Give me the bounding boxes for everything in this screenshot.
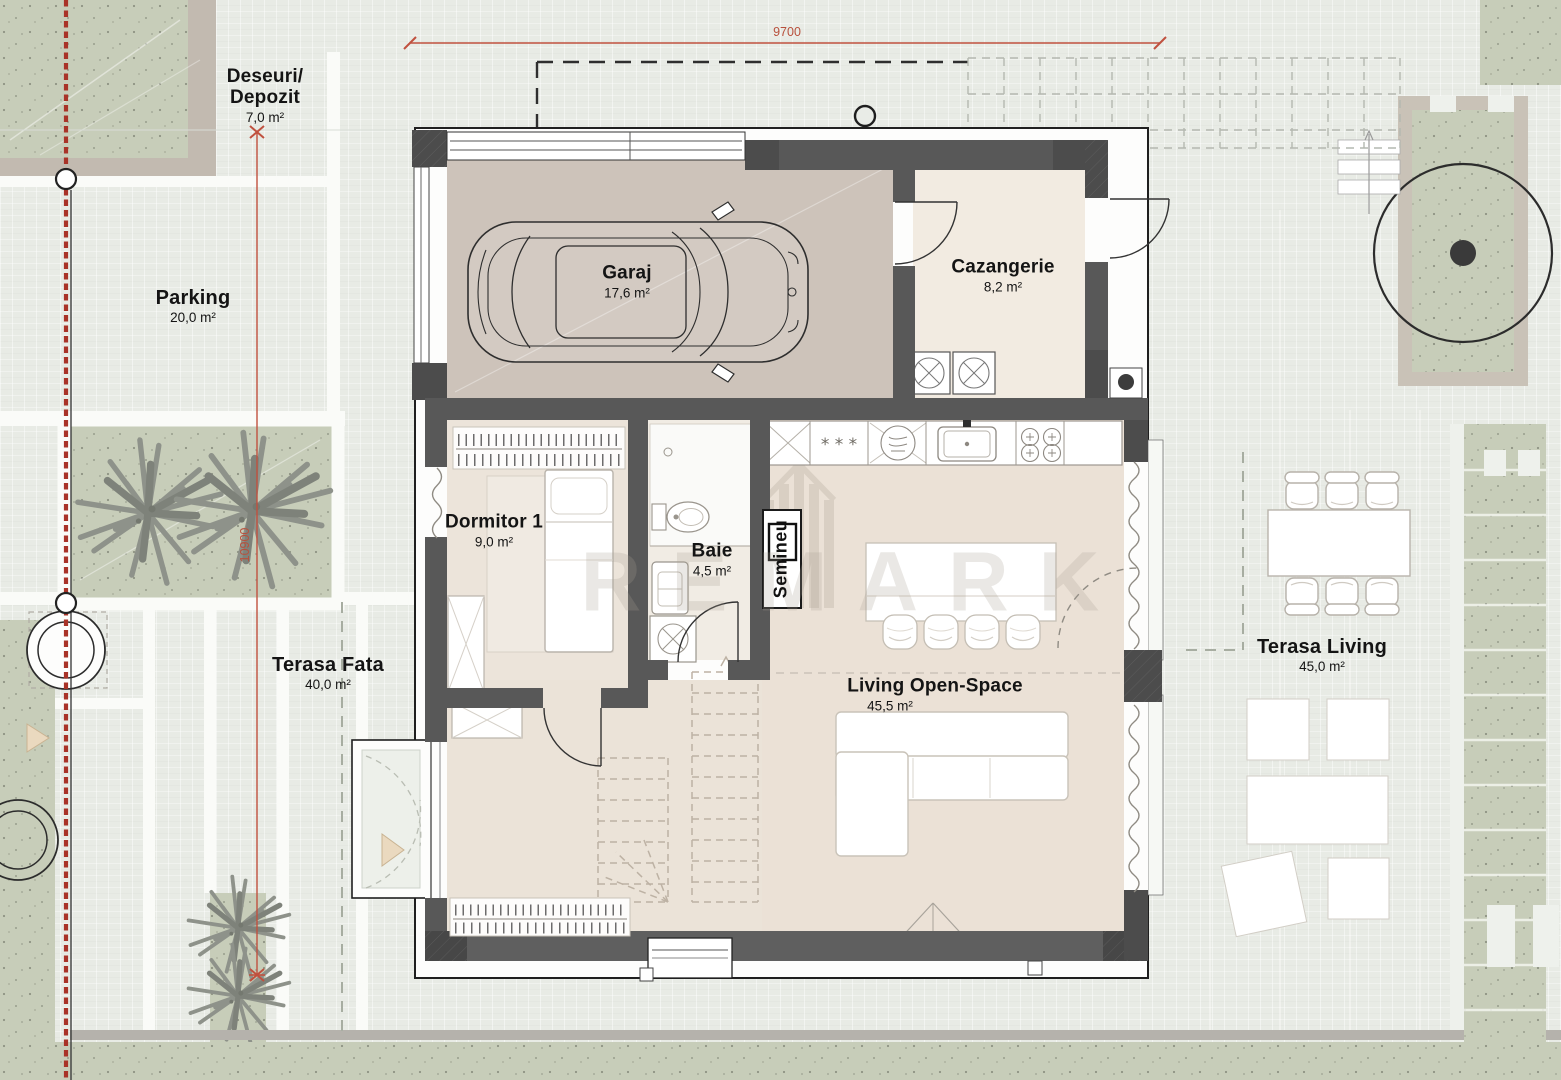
site-label-deseuri: Deseuri/ Depozit 7,0 m² [227,67,304,125]
room-label-dormitor1: Dormitor 1 9,0 m² [445,513,543,550]
cabinet-tall [448,596,484,692]
dining-chair [1285,472,1319,509]
site-label-parking: Parking 20,0 m² [156,287,231,325]
room-label-garaj: Garaj 17,6 m² [602,264,652,301]
loungers [1221,699,1389,937]
svg-text:* * *: * * * [821,435,857,455]
wardrobe-bedroom [453,427,625,469]
bottom-walkway-and-green-strip [0,1030,1561,1080]
dining-chair [1325,578,1359,615]
site-label-terasa-fata: Terasa Fata 40,0 m² [272,654,384,692]
dimension-height-label: 10900 [238,528,252,563]
roof-overhang-dashed [537,62,968,128]
chimney-vent [855,106,875,126]
dining-chair [1285,578,1319,615]
dimension-width-label: 9700 [773,25,801,39]
dining-chair [1365,578,1399,615]
site-label-terasa-living: Terasa Living 45,0 m² [1257,636,1387,674]
room-label-baie: Baie 4,5 m² [692,542,733,579]
entrance-porch [362,750,421,888]
room-label-semineu: Semineu [771,520,792,599]
room-label-cazangerie: Cazangerie 8,2 m² [951,258,1054,295]
kitchen-counter: * * * [764,417,1122,465]
wardrobe-hall [450,898,630,936]
dining-table [1268,510,1410,576]
room-label-living: Living Open-Space 45,5 m² [847,677,1023,714]
greenery-bottom-left [0,620,266,1080]
dining-chair [1325,472,1359,509]
floor-plan-canvas: * * * [0,0,1561,1080]
watermark-text: REMARK [581,534,1130,631]
dining-chair [1365,472,1399,509]
